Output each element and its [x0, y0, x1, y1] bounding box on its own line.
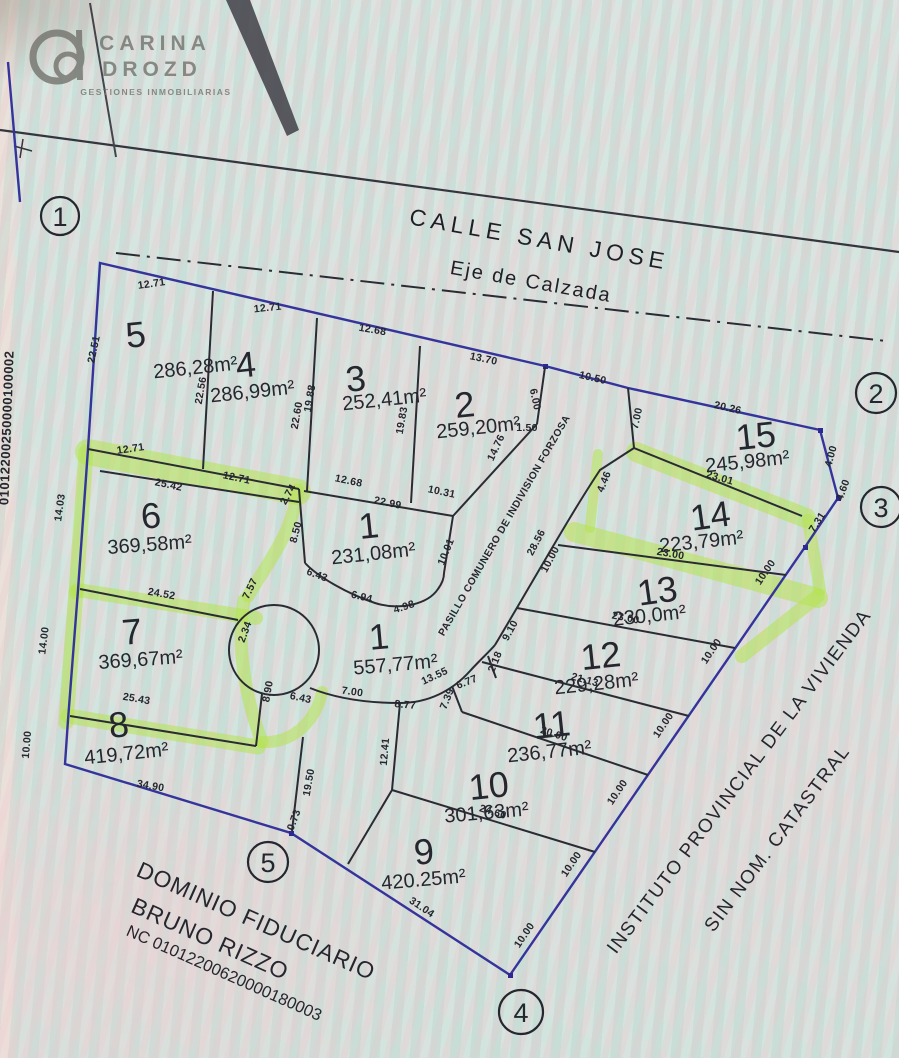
measurement-label: 10.00 [20, 730, 34, 759]
measurement-labels: 12.71 12.71 12.68 13.70 6.00 10.50 7.00 … [20, 276, 853, 950]
svg-text:1: 1 [367, 615, 391, 658]
lot-label-1-large: 1 557,77m² [352, 615, 438, 679]
measurement-label: 13.70 [469, 350, 499, 368]
measurement-label: 19.50 [301, 768, 318, 797]
svg-text:301,63m²: 301,63m² [443, 798, 529, 827]
plan-drawing: 12.71 12.71 12.68 13.70 6.00 10.50 7.00 … [0, 0, 899, 1058]
corridor-label: PASILLO COMUNERO DE INDIVISION FORZOSA [437, 413, 573, 638]
measurement-label: 12.68 [334, 472, 364, 490]
svg-text:223,79m²: 223,79m² [658, 527, 745, 558]
measurement-label: 10.00 [512, 920, 537, 950]
vertex-3: 3 [861, 487, 899, 527]
measurement-label: 12.71 [253, 301, 282, 316]
svg-text:2: 2 [868, 379, 883, 409]
measurement-label: 4.98 [392, 598, 416, 616]
svg-text:5: 5 [260, 848, 275, 878]
measurement-label: 9.10 [500, 618, 521, 643]
lot-label-2: 2 259,20m² [435, 383, 522, 443]
svg-text:9: 9 [412, 830, 436, 873]
lot-label-7: 7 369,67m² [98, 610, 184, 674]
measurement-label: 34.90 [136, 778, 165, 795]
measurement-label: 10.31 [427, 483, 457, 501]
vertex-4: 4 [499, 990, 543, 1034]
lot-label-6: 6 369,58m² [107, 494, 193, 559]
measurement-label: 7.39 [438, 687, 457, 712]
svg-text:245,98m²: 245,98m² [704, 447, 791, 478]
lot-label-9: 9 420.25m² [380, 830, 466, 894]
svg-text:369,58m²: 369,58m² [107, 531, 193, 559]
svg-text:230,0m²: 230,0m² [612, 601, 688, 631]
street-lines [0, 62, 899, 341]
lot-label-14: 14 223,79m² [658, 493, 745, 558]
neighbor-label-line2: SIN NOM. CATASTRAL [701, 741, 855, 936]
vertex-2: 2 [856, 373, 896, 413]
svg-text:1: 1 [357, 504, 381, 547]
fiduciary-labels: DOMINIO FIDUCIARIO BRUNO RIZZO NC 010122… [124, 856, 380, 1024]
lot-label-10: 10 301,63m² [443, 763, 529, 828]
svg-text:8: 8 [107, 703, 131, 746]
lot-label-15: 15 245,98m² [704, 413, 791, 477]
left-margin-nc: 01012200250000100002 [0, 350, 17, 505]
measurement-label: 0.73 [285, 808, 304, 832]
measurement-label: 10.00 [539, 545, 563, 575]
lot-label-5: 5 286,28m² [124, 313, 239, 383]
svg-text:236,77m²: 236,77m² [506, 737, 593, 768]
svg-text:7: 7 [120, 610, 144, 653]
svg-text:286,28m²: 286,28m² [152, 353, 239, 384]
measurement-label: 10.01 [435, 537, 457, 567]
cadastral-plan-photo: 12.71 12.71 12.68 13.70 6.00 10.50 7.00 … [0, 0, 899, 1058]
svg-text:3: 3 [873, 493, 888, 523]
vertex-5: 5 [248, 842, 288, 882]
svg-text:4: 4 [234, 343, 258, 386]
svg-text:1: 1 [52, 202, 67, 232]
svg-text:419,72m²: 419,72m² [83, 739, 170, 770]
measurement-label: 4.60 [834, 478, 853, 502]
watermark-tagline: GESTIONES INMOBILIARIAS [80, 87, 231, 97]
measurement-label: 10.00 [699, 636, 724, 666]
measurement-label: 28.56 [525, 528, 549, 558]
lot-label-1-small: 1 231,08m² [330, 504, 417, 569]
svg-text:6: 6 [139, 494, 163, 537]
lot-label-12: 12 229,28m² [553, 633, 640, 699]
measurement-label: 10.00 [651, 710, 676, 740]
measurement-label: 8.77 [394, 698, 417, 712]
svg-text:229,28m²: 229,28m² [553, 669, 640, 700]
measurement-label: 6.43 [305, 566, 329, 585]
svg-text:286,99m²: 286,99m² [209, 377, 296, 408]
lot-label-13: 13 230,0m² [612, 568, 688, 631]
lot-label-3: 3 252,41m² [341, 357, 428, 415]
measurement-label: 10.50 [578, 369, 608, 387]
measurement-label: 8.90 [260, 680, 276, 703]
measurement-label: 6.43 [289, 690, 313, 706]
measurement-label: 22.99 [373, 494, 403, 512]
measurement-label: 6.77 [455, 673, 480, 692]
measurement-label: 12.68 [358, 322, 387, 339]
measurement-label: 12.41 [378, 737, 392, 766]
vertex-1: 1 [41, 197, 79, 235]
measurement-label: 19.88 [302, 384, 319, 413]
measurement-label: 14.03 [52, 493, 68, 522]
svg-text:5: 5 [124, 313, 148, 356]
measurement-label: 22.51 [85, 335, 103, 365]
measurement-label: 20.26 [713, 399, 743, 417]
street-name-label: CALLE SAN JOSE [408, 203, 672, 274]
measurement-label: 14.00 [36, 626, 51, 655]
measurement-label: 12.71 [137, 276, 166, 292]
watermark-brand-line2: DROZD [102, 58, 202, 81]
measurement-label: 6.94 [350, 589, 374, 606]
svg-text:369,67m²: 369,67m² [98, 646, 184, 674]
svg-text:4: 4 [513, 998, 528, 1028]
lot-label-11: 11 236,77m² [506, 702, 593, 767]
svg-text:231,08m²: 231,08m² [330, 539, 417, 570]
watermark-brand-line1: CARINA [99, 32, 211, 55]
svg-text:259,20m²: 259,20m² [435, 413, 522, 444]
measurement-label: 19.83 [394, 406, 411, 435]
svg-text:420.25m²: 420.25m² [380, 865, 466, 894]
watermark: CARINA DROZD GESTIONES INMOBILIARIAS [33, 30, 232, 97]
measurement-label: 10.00 [605, 777, 630, 807]
measurement-label: 7.00 [629, 407, 645, 431]
